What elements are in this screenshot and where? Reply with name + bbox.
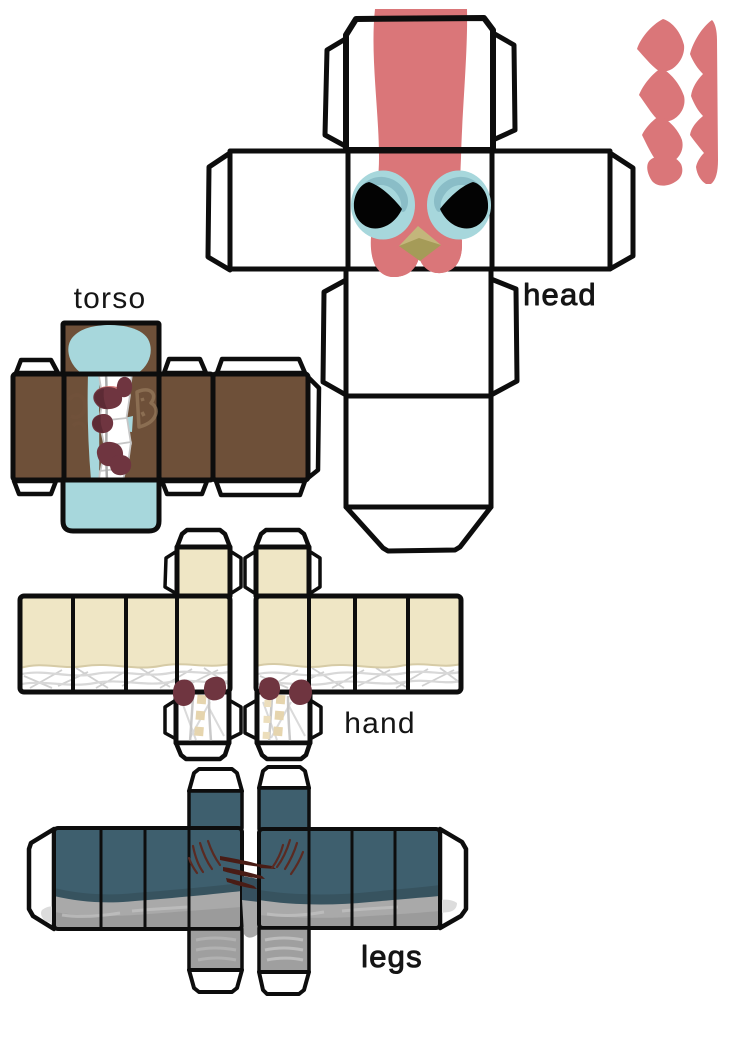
svg-text:hand: hand: [344, 707, 416, 740]
svg-text:torso: torso: [74, 282, 147, 315]
svg-text:head: head: [523, 277, 597, 312]
svg-text:legs: legs: [361, 939, 423, 974]
